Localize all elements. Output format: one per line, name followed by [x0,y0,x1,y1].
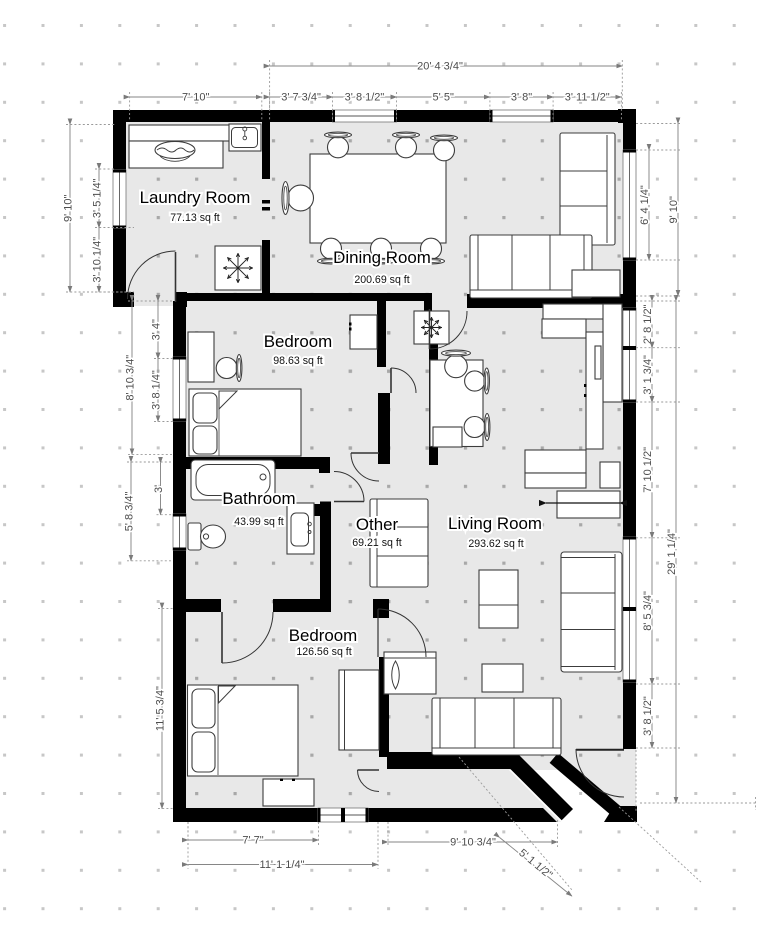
svg-text:7' 10 1/2": 7' 10 1/2" [642,447,654,493]
svg-text:Laundry Room: Laundry Room [140,188,251,207]
svg-text:69.21 sq ft: 69.21 sq ft [352,537,402,549]
svg-text:2' 8 1/2": 2' 8 1/2" [642,304,654,344]
svg-text:3' 7 3/4": 3' 7 3/4" [281,92,321,104]
svg-text:29' 1 1/4": 29' 1 1/4" [666,529,678,575]
svg-text:8' 10 3/4": 8' 10 3/4" [125,355,137,401]
svg-text:3' 8 1/2": 3' 8 1/2" [345,92,385,104]
svg-text:9' 10": 9' 10" [668,196,680,224]
svg-text:3': 3' [153,485,165,493]
svg-text:7' 10": 7' 10" [182,92,210,104]
svg-text:126.56 sq ft: 126.56 sq ft [296,646,351,658]
svg-text:3' 11 1/2": 3' 11 1/2" [565,92,610,104]
svg-text:98.63 sq ft: 98.63 sq ft [273,355,323,367]
svg-text:Bedroom: Bedroom [264,332,333,351]
svg-text:11' 1 1/4": 11' 1 1/4" [260,859,305,871]
svg-text:3' 1 3/4": 3' 1 3/4" [642,355,654,395]
svg-text:293.62 sq ft: 293.62 sq ft [468,538,523,550]
svg-text:5' 5": 5' 5" [433,92,454,104]
svg-text:Other: Other [356,515,399,534]
svg-text:Living Room: Living Room [448,514,542,533]
svg-text:9' 10 3/4": 9' 10 3/4" [450,837,496,849]
svg-text:43.99 sq ft: 43.99 sq ft [234,516,284,528]
svg-text:3' 8 1/4": 3' 8 1/4" [151,370,163,410]
svg-text:3' 5 1/4": 3' 5 1/4" [92,178,104,218]
svg-text:3' 4": 3' 4" [151,319,163,340]
svg-text:3' 10 1/4": 3' 10 1/4" [92,237,104,283]
svg-text:6' 4 1/4": 6' 4 1/4" [639,185,651,225]
svg-text:20' 4 3/4": 20' 4 3/4" [417,61,463,73]
svg-text:7' 7": 7' 7" [242,835,263,847]
svg-text:3' 8 1/2": 3' 8 1/2" [642,696,654,736]
svg-text:77.13 sq ft: 77.13 sq ft [170,212,220,224]
svg-text:Bedroom: Bedroom [289,626,358,645]
svg-text:3' 8": 3' 8" [511,92,532,104]
svg-text:9' 10": 9' 10" [63,194,75,222]
svg-text:5' 8 3/4": 5' 8 3/4" [124,491,136,531]
svg-text:11' 5 3/4": 11' 5 3/4" [155,686,167,731]
svg-text:Bathroom: Bathroom [222,489,295,508]
svg-text:Dining Room: Dining Room [333,248,431,267]
svg-text:200.69 sq ft: 200.69 sq ft [354,274,409,286]
svg-text:8' 5 3/4": 8' 5 3/4" [642,591,654,631]
